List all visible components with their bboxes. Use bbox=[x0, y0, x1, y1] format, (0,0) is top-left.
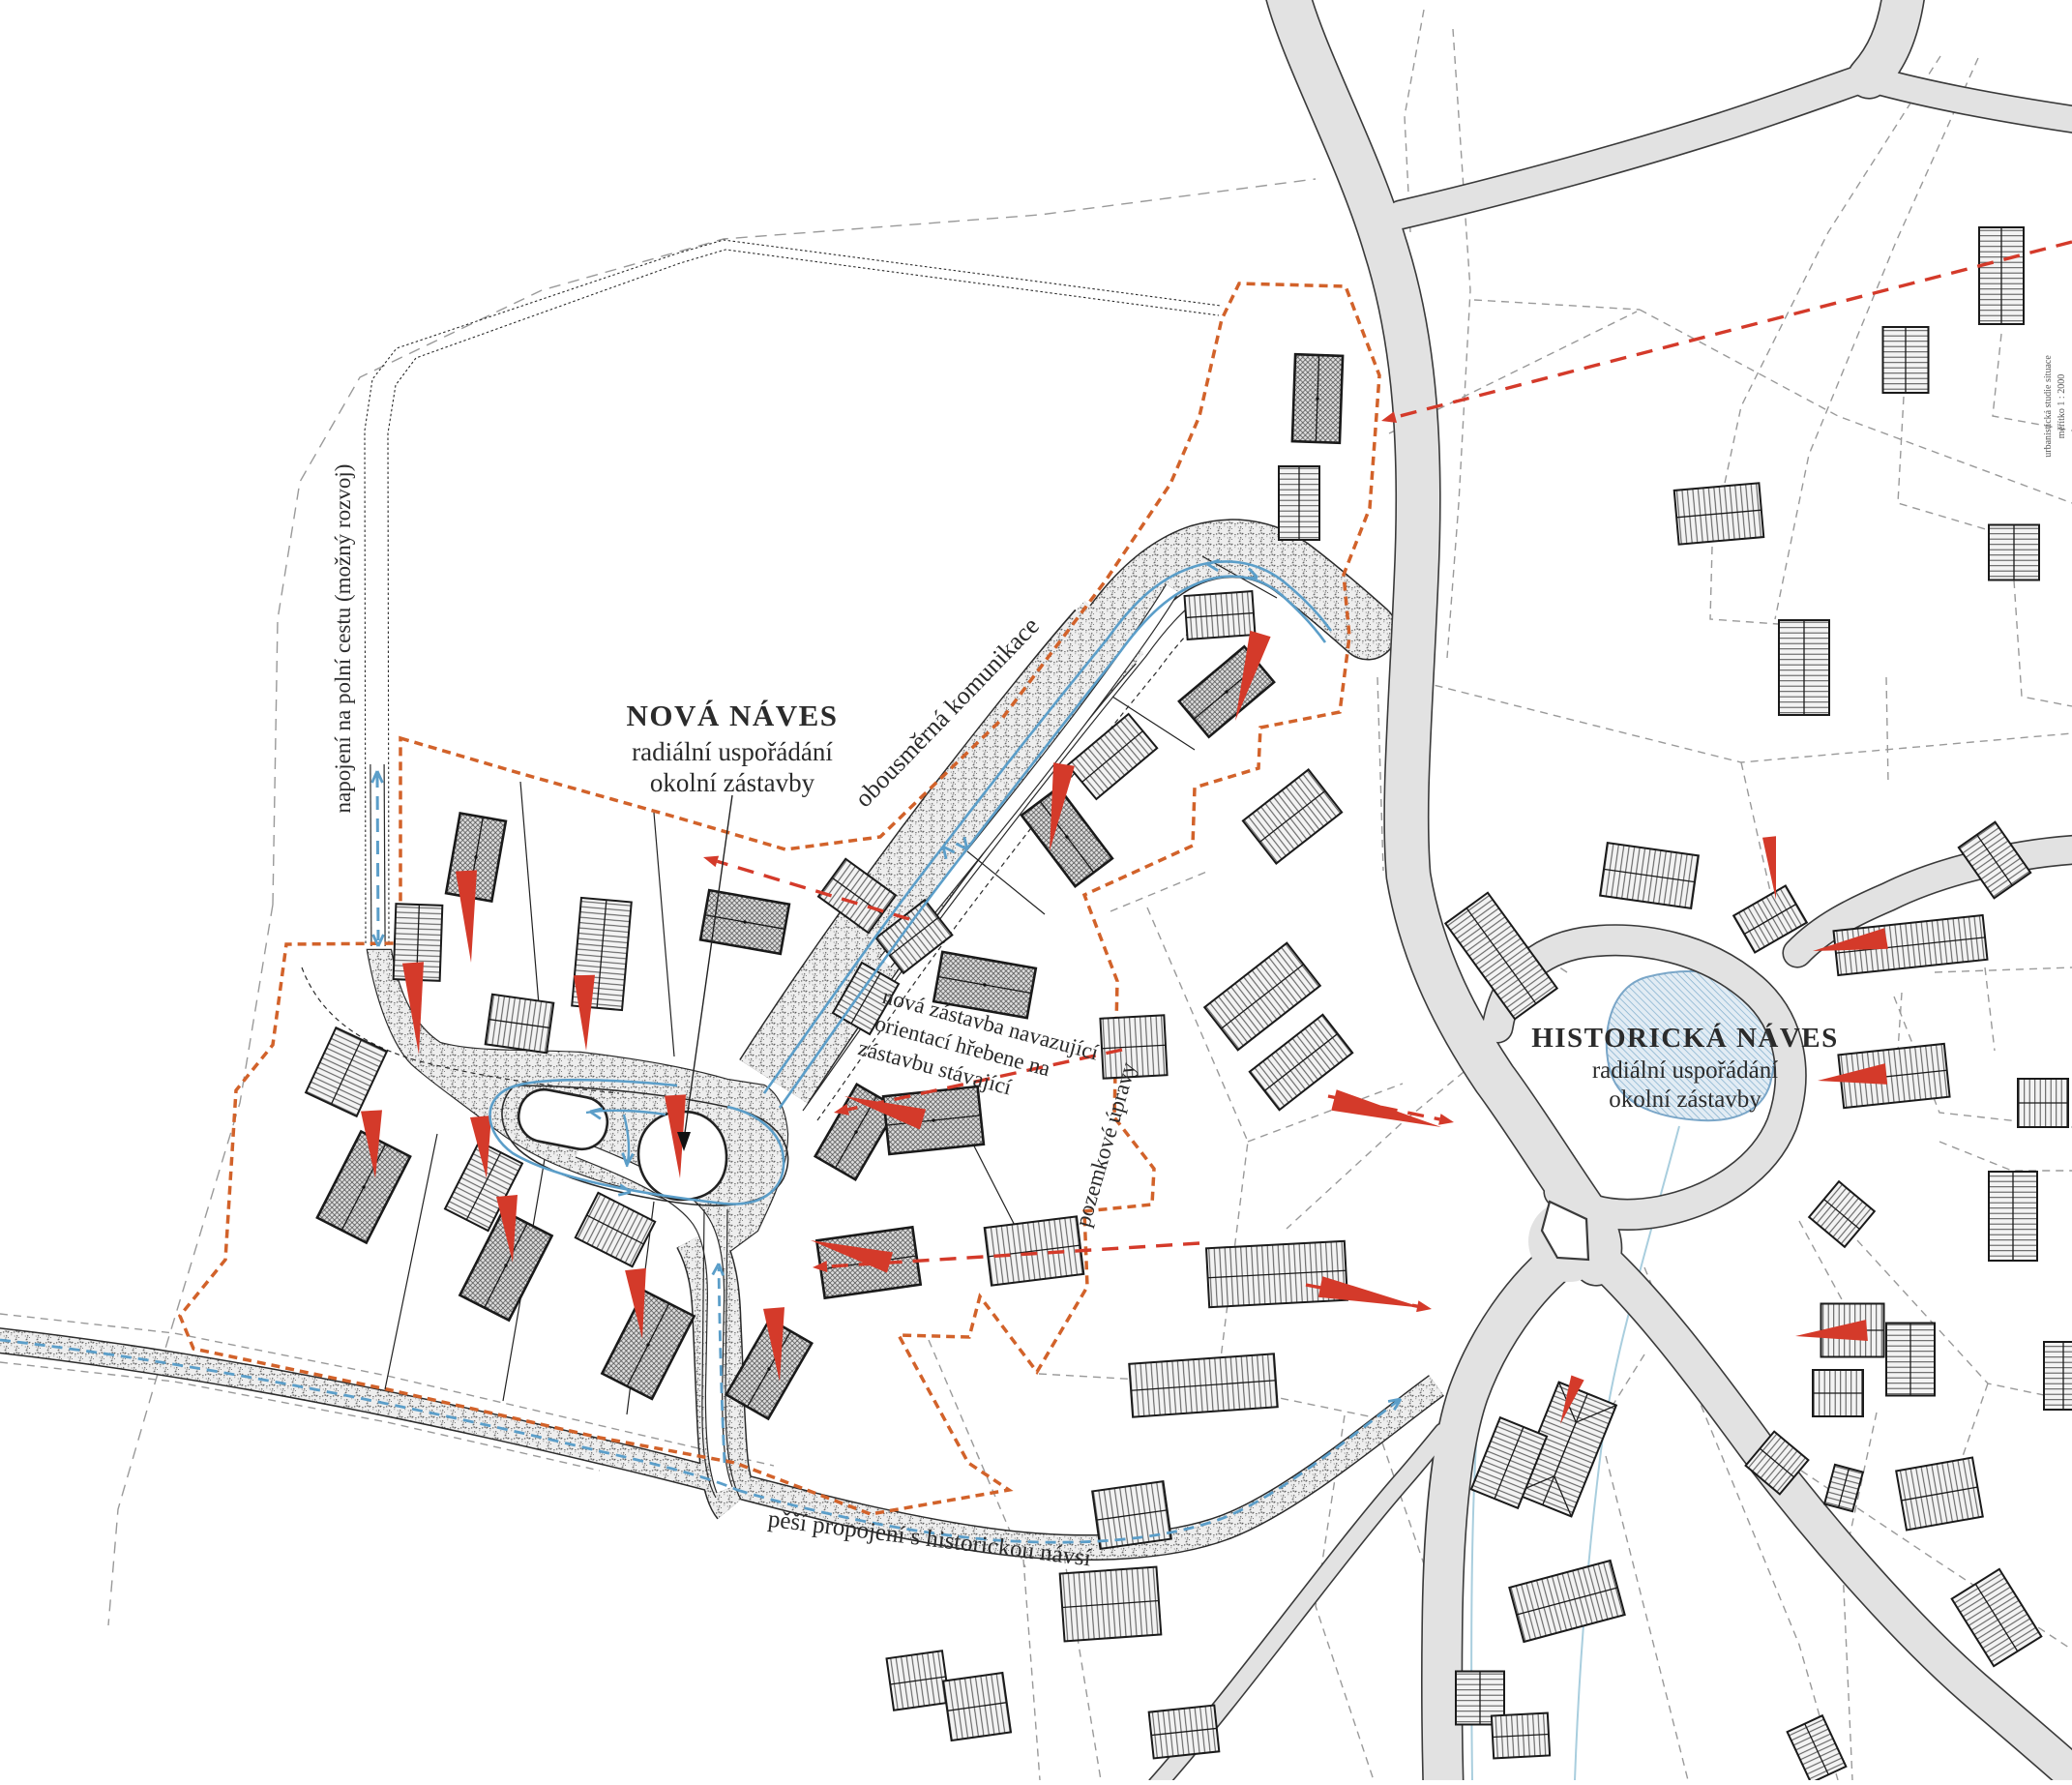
svg-text:měřítko 1 : 2000: měřítko 1 : 2000 bbox=[2057, 374, 2067, 438]
svg-text:radiální uspořádání: radiální uspořádání bbox=[1592, 1057, 1778, 1084]
svg-text:okolní zástavby: okolní zástavby bbox=[1609, 1086, 1761, 1113]
svg-text:urbanistická studie situace: urbanistická studie situace bbox=[2043, 355, 2054, 458]
svg-text:HISTORICKÁ NÁVES: HISTORICKÁ NÁVES bbox=[1531, 1022, 1839, 1054]
svg-text:okolní zástavby: okolní zástavby bbox=[650, 768, 815, 797]
svg-text:NOVÁ NÁVES: NOVÁ NÁVES bbox=[626, 699, 838, 732]
svg-text:radiální uspořádání: radiální uspořádání bbox=[632, 737, 833, 766]
svg-text:napojení na polní cestu (možný: napojení na polní cestu (možný rozvoj) bbox=[331, 464, 355, 814]
